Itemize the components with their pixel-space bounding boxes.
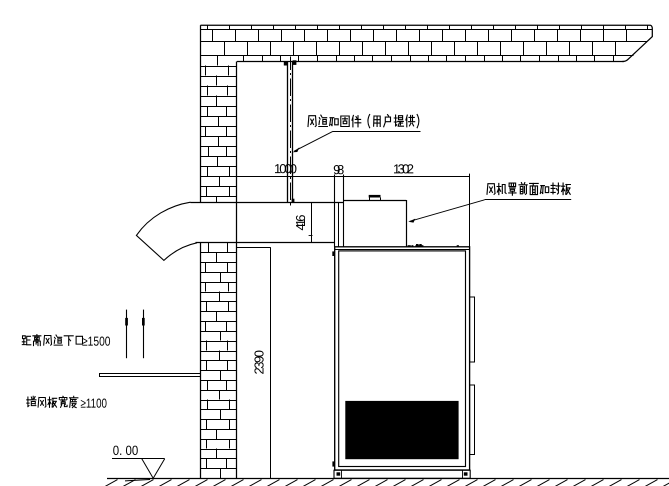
- svg-text:2390: 2390: [252, 350, 267, 375]
- svg-text:1000: 1000: [274, 161, 297, 176]
- svg-text:≥1500: ≥1500: [82, 334, 111, 349]
- svg-text:98: 98: [333, 162, 344, 177]
- svg-text:416: 416: [293, 215, 308, 231]
- svg-text:0. 00: 0. 00: [113, 443, 139, 458]
- svg-text:≥1100: ≥1100: [80, 396, 107, 411]
- svg-text:1302: 1302: [393, 161, 414, 176]
